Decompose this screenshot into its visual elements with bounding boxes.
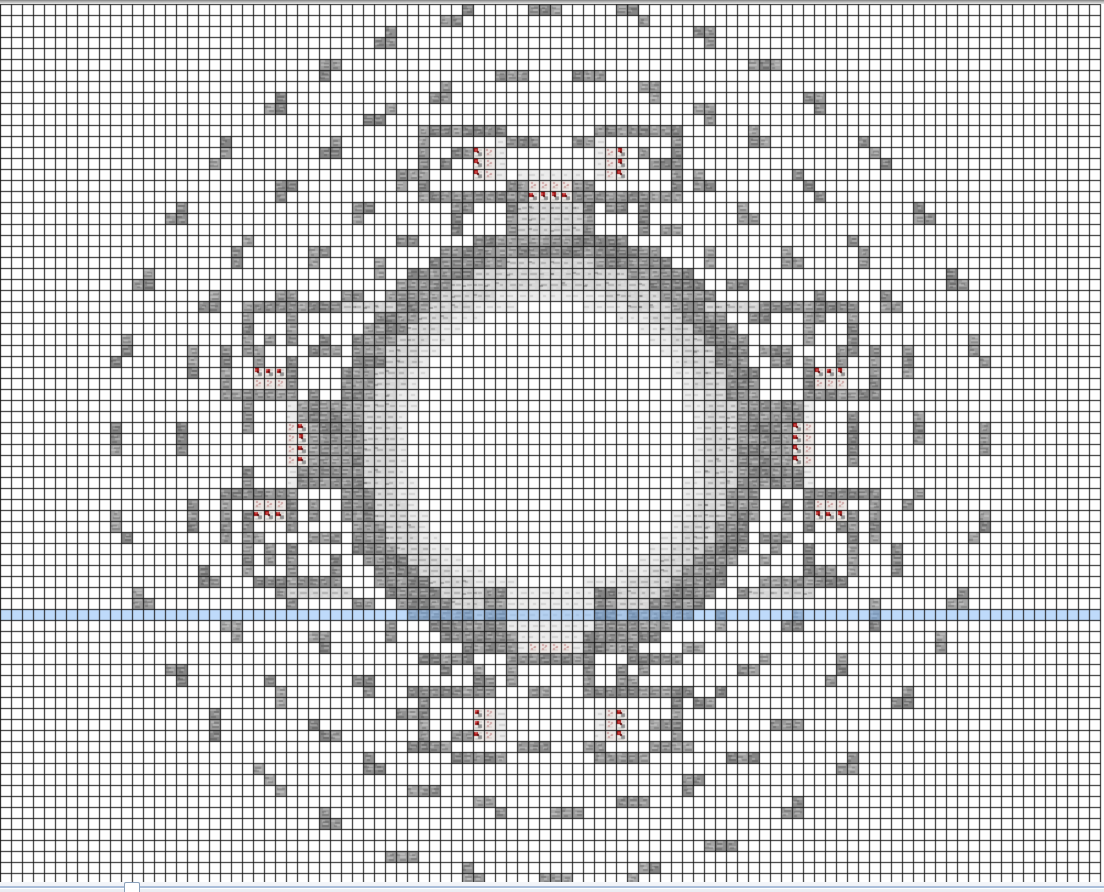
grid-canvas[interactable] (0, 0, 1104, 892)
scrollbar-groove (0, 886, 1104, 889)
structure-planner-window (0, 0, 1104, 892)
top-border-bar (0, 0, 1104, 4)
horizontal-scrollbar-track[interactable] (0, 882, 1104, 892)
horizontal-scrollbar-thumb[interactable] (124, 882, 140, 892)
